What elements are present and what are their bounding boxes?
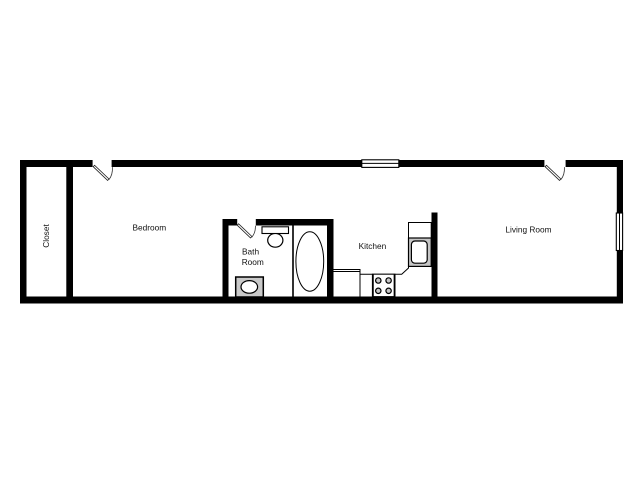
svg-text:Bedroom: Bedroom (133, 223, 167, 233)
svg-text:Living Room: Living Room (505, 224, 551, 234)
svg-text:Kitchen: Kitchen (359, 241, 387, 251)
svg-text:Bath: Bath (242, 247, 259, 257)
svg-text:Closet: Closet (41, 224, 51, 248)
svg-text:Room: Room (242, 257, 264, 267)
